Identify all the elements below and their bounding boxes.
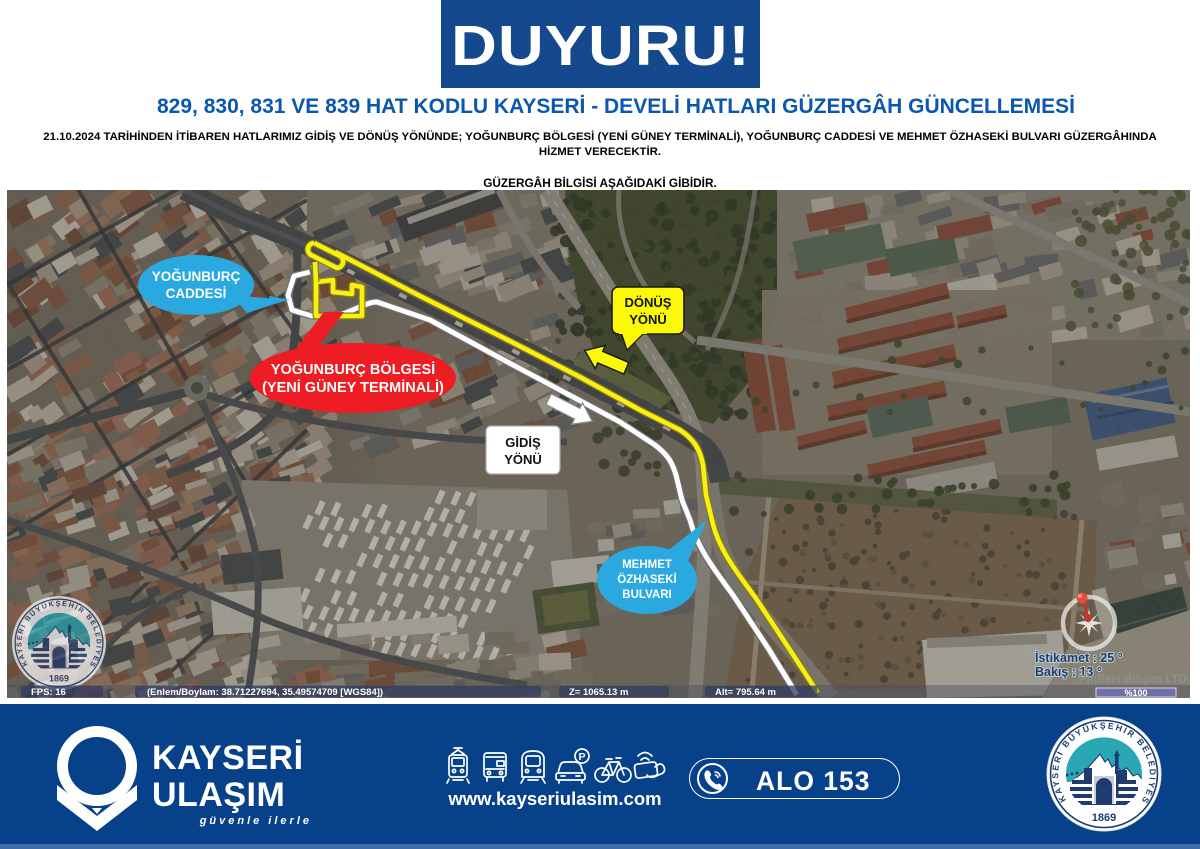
svg-text:BULVARI: BULVARI [622, 589, 671, 601]
svg-text:YÖNÜ: YÖNÜ [629, 312, 667, 327]
svg-text:PinReis Bilişim LTD: PinReis Bilişim LTD [1079, 674, 1187, 686]
svg-text:CADDESİ: CADDESİ [166, 286, 227, 301]
svg-text:YOĞUNBURÇ: YOĞUNBURÇ [152, 269, 241, 284]
svg-text:İstikamet : 25 °: İstikamet : 25 ° [1035, 650, 1123, 665]
svg-text:DÖNÜŞ: DÖNÜŞ [625, 295, 672, 310]
svg-text:P: P [578, 751, 585, 763]
svg-text:YÖNÜ: YÖNÜ [504, 452, 542, 467]
svg-text:(YENİ GÜNEY TERMİNALİ): (YENİ GÜNEY TERMİNALİ) [262, 379, 444, 396]
svg-text:ÖZHASEKİ: ÖZHASEKİ [617, 573, 676, 586]
svg-text:FPS: 16: FPS: 16 [31, 687, 66, 698]
svg-text:Alt= 795.64 m: Alt= 795.64 m [715, 687, 776, 698]
svg-text:MEHMET: MEHMET [622, 559, 672, 571]
svg-text:(Enlem/Boylam: 38.71227694, 35: (Enlem/Boylam: 38.71227694, 35.49574709 … [147, 687, 383, 698]
svg-text:GİDİŞ: GİDİŞ [505, 435, 541, 450]
svg-text:Z= 1065.13 m: Z= 1065.13 m [569, 687, 628, 698]
svg-text:YOĞUNBURÇ BÖLGESİ: YOĞUNBURÇ BÖLGESİ [271, 360, 435, 378]
svg-text:%100: %100 [1124, 688, 1147, 698]
